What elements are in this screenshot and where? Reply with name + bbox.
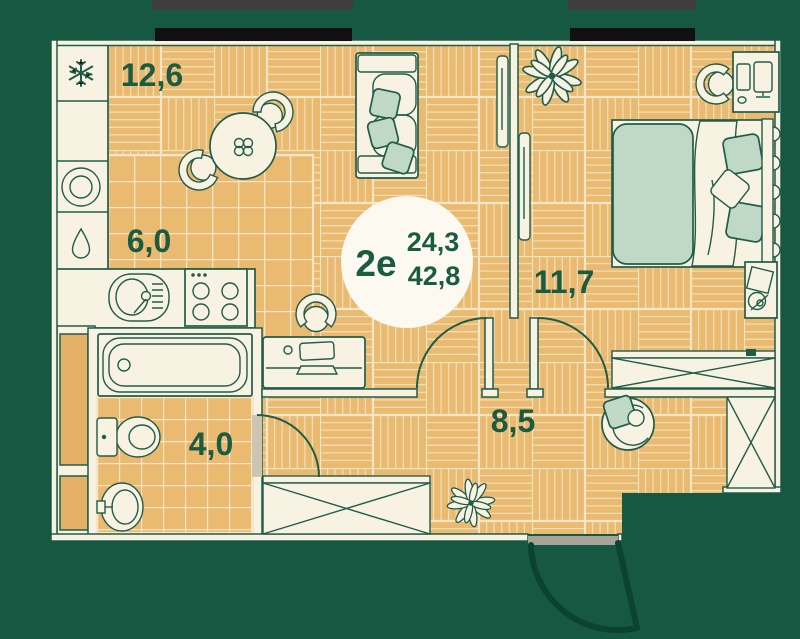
wall-hallway-left xyxy=(262,389,417,397)
room-label-bathroom: 4,0 xyxy=(189,426,233,462)
room-label-living: 12,6 xyxy=(121,57,183,93)
floorplan-svg: 2е 24,3 42,8 12,6 6,0 4,0 11,7 8,5 xyxy=(0,0,800,639)
window-glass-bedroom xyxy=(570,28,695,41)
bed-pillow xyxy=(722,133,764,175)
wall-jamb-right xyxy=(530,318,538,389)
wall-left xyxy=(51,40,57,541)
keyboard xyxy=(297,366,337,374)
bed xyxy=(612,119,780,268)
wall-partition xyxy=(510,44,518,318)
kitchen-sink xyxy=(109,274,169,321)
wall-jamb-left xyxy=(485,318,493,389)
window-glass-living xyxy=(155,28,352,41)
bedroom-chair xyxy=(696,64,733,104)
bathroom-block xyxy=(88,328,262,541)
window-frame xyxy=(152,0,353,10)
room-label-kitchen: 6,0 xyxy=(127,223,171,259)
wall-hallway-right xyxy=(605,389,775,397)
hallway-wardrobe-low xyxy=(263,476,430,534)
bedroom-wardrobe xyxy=(612,349,775,388)
bathtub xyxy=(98,334,252,396)
apartment-type-label: 2е xyxy=(355,243,396,284)
sofa xyxy=(356,53,418,178)
bathroom-door-threshold xyxy=(252,415,262,477)
floorplan-canvas: 2е 24,3 42,8 12,6 6,0 4,0 11,7 8,5 xyxy=(0,0,800,639)
room-label-hallway: 8,5 xyxy=(491,403,535,439)
wall-bottom-left xyxy=(51,534,528,541)
living-area-value: 24,3 xyxy=(407,227,460,257)
entry-threshold xyxy=(528,536,618,545)
wall-bottom-entry-jamb xyxy=(618,534,622,541)
total-area-value: 42,8 xyxy=(408,261,461,291)
bed-duvet xyxy=(613,124,693,264)
toilet xyxy=(97,417,160,457)
desk-chair xyxy=(296,294,336,331)
window-frame xyxy=(568,0,696,10)
nightstand xyxy=(745,262,777,318)
plan-badge: 2е 24,3 42,8 xyxy=(341,196,473,328)
kitchen-cabinet-column xyxy=(55,44,108,270)
stove xyxy=(185,269,247,326)
hallway-wardrobe-tall xyxy=(727,397,775,488)
kitchen-counter xyxy=(55,269,255,328)
room-label-bedroom: 11,7 xyxy=(534,264,595,300)
